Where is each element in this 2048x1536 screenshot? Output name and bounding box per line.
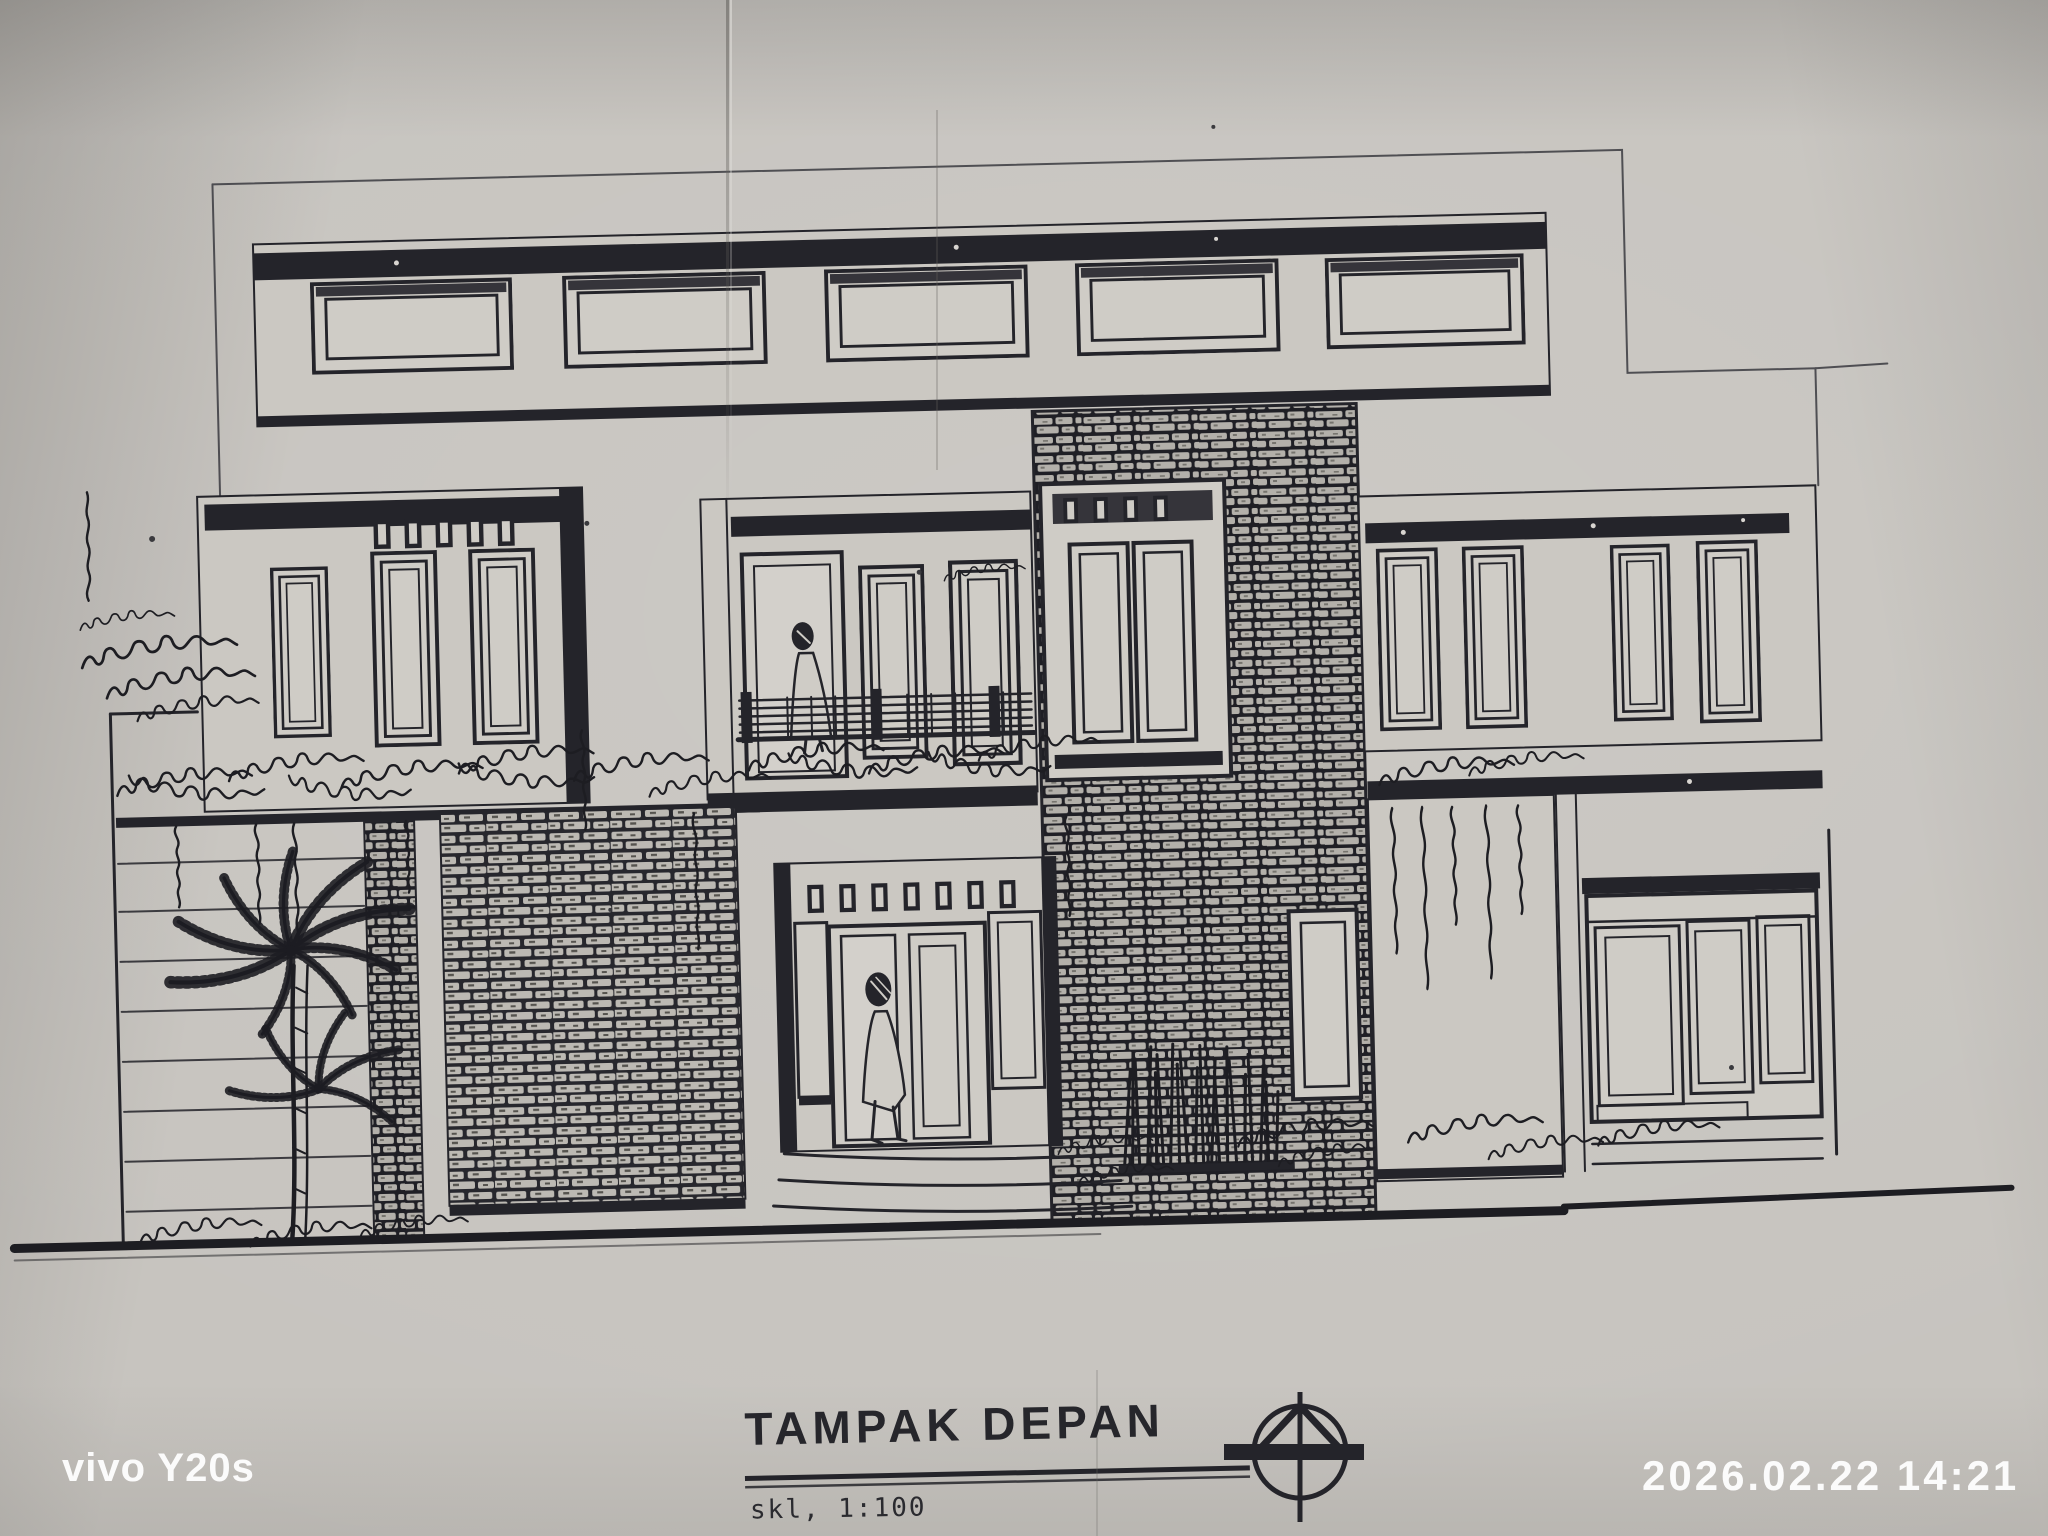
vent-window [500,519,513,544]
window [372,552,439,746]
clerestory-window [826,266,1028,360]
scale-label: skl, 1:100 [750,1492,927,1525]
elevation-drawing [0,0,2048,1536]
right-ground-window [1581,830,1837,1164]
stone-feature-wall [440,807,746,1216]
camera-watermark: vivo Y20s [62,1446,255,1491]
vent-window [376,522,389,547]
vent-window [407,521,420,546]
clerestory-window [1327,255,1524,347]
vent-window [1001,882,1013,906]
right-wing-upper [1358,485,1822,799]
north-arrow-icon [1224,1392,1364,1522]
vent-window [841,886,853,910]
tower-ground-window [1289,910,1362,1100]
vent-window [809,887,821,911]
camera-timestamp: 2026.02.22 14:21 [1642,1452,2019,1500]
vent-window [873,885,885,909]
stone-tower [1032,403,1388,1221]
vent-window [438,520,451,545]
window [1611,545,1672,719]
clerestory-window [312,279,512,372]
entry-side-window [795,923,831,1106]
vent-window [469,520,482,545]
window [272,568,331,736]
title-underline [745,1465,1250,1488]
clerestory-window [564,273,766,367]
window [470,550,537,744]
vent-window [905,884,917,908]
entry-sidelight [988,911,1044,1088]
vent-window [969,883,981,907]
entry-porch [774,857,1062,1152]
window [1378,549,1441,729]
drawing-title: TAMPAK DEPAN [744,1393,1165,1456]
window [1697,541,1760,721]
photo-of-elevation-drawing: TAMPAK DEPAN skl, 1:100 vivo Y20s 2026.0… [0,0,2048,1536]
vent-window [937,884,949,908]
balcony-door-open [742,552,847,778]
stone-pillar [364,821,424,1242]
left-wing-upper [197,487,590,811]
window [1464,547,1527,727]
clerestory-band [253,213,1550,427]
entry-door [829,923,990,1147]
clerestory-window [1077,260,1279,354]
